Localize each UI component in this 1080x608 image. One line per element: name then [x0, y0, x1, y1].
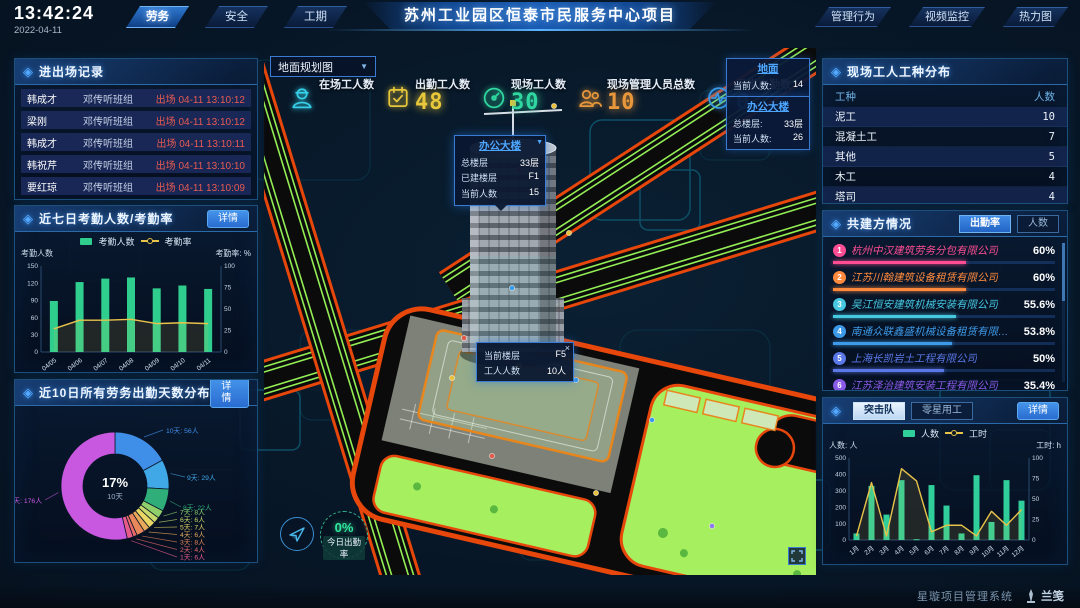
- partner-item: 2江苏川翰建筑设备租赁有限公司60%: [833, 270, 1055, 291]
- site-stat-value: 10: [607, 92, 695, 113]
- tooltip-row: 已建楼层F1: [461, 171, 539, 184]
- svg-text:0: 0: [34, 349, 38, 356]
- partner-name: 杭州中汉建筑劳务分包有限公司: [851, 243, 998, 258]
- tooltip-row-value: 14: [793, 79, 803, 92]
- worker-count: 4: [1049, 191, 1055, 203]
- partner-bar-fill: [833, 315, 956, 318]
- exit-event: 出场 04-11 13:10:12: [156, 113, 245, 128]
- tooltip-row-label: 当前楼层: [484, 349, 520, 362]
- svg-text:200: 200: [835, 504, 846, 511]
- tooltip-row: 工人人数10人: [484, 364, 566, 377]
- partner-bar-fill: [833, 288, 966, 291]
- svg-text:60: 60: [31, 315, 39, 322]
- today-attendance-gauge: 0% 今日出勤率: [320, 511, 368, 559]
- scrollbar[interactable]: [1062, 243, 1065, 382]
- svg-text:12月: 12月: [1010, 544, 1026, 559]
- tooltip-row-value: F1: [528, 171, 539, 184]
- svg-text:5月: 5月: [908, 544, 921, 557]
- map-area: 地面规划图 ▼ 在场工人数出勤工人数48现场工人数30现场管理人员总数10异常出…: [264, 48, 816, 575]
- site-stat-info: 现场工人数30: [511, 76, 566, 113]
- svg-text:30: 30: [31, 332, 39, 339]
- chart-legend: 人数工时: [823, 426, 1067, 440]
- rank-badge: 2: [833, 271, 846, 284]
- partner-item-top: 1杭州中汉建筑劳务分包有限公司60%: [833, 243, 1055, 258]
- svg-text:300: 300: [835, 488, 846, 495]
- diamond-icon: ◈: [23, 65, 33, 78]
- diamond-icon: ◈: [831, 404, 841, 417]
- topbar-tab[interactable]: 管理行为: [815, 7, 891, 27]
- diamond-icon: ◈: [831, 217, 841, 230]
- diamond-icon: ◈: [831, 65, 841, 78]
- legend-label: 考勤人数: [98, 235, 134, 248]
- svg-text:2月: 2月: [863, 544, 876, 557]
- tooltip-row: 当前人数:14: [733, 79, 803, 92]
- exit-event: 出场 04-11 13:10:10: [156, 157, 245, 172]
- partner-name: 江苏川翰建筑设备租赁有限公司: [851, 270, 998, 285]
- site-stat-value: 30: [511, 92, 566, 113]
- squad-chart-svg: 010020030040050002550751001月2月3月4月5月6月7月…: [823, 450, 1055, 564]
- site-stat-info: 现场管理人员总数10: [607, 76, 695, 113]
- partner-name: 江苏泽治建筑安装工程有限公司: [851, 378, 998, 391]
- svg-text:04/09: 04/09: [144, 357, 161, 373]
- attendance-chart-panel: ◈ 近七日考勤人数/考勤率 详情 考勤人数考勤率考勤人数考勤率: %030609…: [14, 205, 258, 373]
- map-info-box-title: 办公大楼: [733, 99, 803, 114]
- fullscreen-icon: [791, 550, 803, 562]
- partner-name: 上海长凯岩土工程有限公司: [851, 351, 977, 366]
- worker-types-panel: ◈ 现场工人工种分布 工种人数 泥工10混凝土工7其他5木工4塔司4: [822, 58, 1068, 204]
- distribution-detail-button[interactable]: 详情: [210, 379, 249, 408]
- close-icon[interactable]: ×: [565, 343, 570, 353]
- svg-text:9月: 9月: [968, 544, 981, 557]
- diamond-icon: ◈: [23, 386, 33, 399]
- partner-value: 55.6%: [1024, 299, 1055, 311]
- squad-tab[interactable]: 突击队: [853, 402, 905, 420]
- worker-type: 混凝土工: [835, 129, 877, 144]
- today-attendance-value: 0%: [321, 520, 367, 535]
- partner-value: 35.4%: [1024, 380, 1055, 392]
- site-stats-row: 在场工人数出勤工人数48现场工人数30现场管理人员总数10异常出勤数0: [288, 76, 791, 113]
- svg-text:04/10: 04/10: [170, 357, 187, 373]
- axis-captions: 人数: 人工时: h: [823, 440, 1067, 450]
- svg-text:04/11: 04/11: [196, 357, 213, 372]
- svg-text:3天: 8人: 3天: 8人: [180, 539, 205, 547]
- rank-badge: 3: [833, 298, 846, 311]
- legend-line-dot: [951, 430, 957, 436]
- site-stat: 现场管理人员总数10: [576, 76, 695, 113]
- entry-exit-row: 韩成才邓传听班组出场 04-11 13:10:12: [21, 89, 251, 107]
- worker-group: 邓传听班组: [83, 91, 156, 106]
- tooltip-row: 总楼层33层: [461, 156, 539, 169]
- floor-tooltip: × 当前楼层F5工人人数10人: [476, 342, 574, 382]
- clock: 13:42:24 2022-04-11: [14, 3, 94, 36]
- table-row: 木工4: [823, 167, 1067, 187]
- table-row: 泥工10: [823, 107, 1067, 127]
- site-stat-info: 在场工人数: [319, 76, 374, 113]
- svg-text:04/05: 04/05: [41, 357, 58, 373]
- tooltip-row: 总楼层:33层: [733, 117, 803, 130]
- topbar-tab[interactable]: 安全: [205, 6, 268, 28]
- tooltip-row: 当前楼层F5: [484, 349, 566, 362]
- tooltip-row-label: 当前人数: [461, 187, 497, 200]
- worker-name: 梁刚: [27, 113, 83, 128]
- partner-value: 53.8%: [1024, 326, 1055, 338]
- column-header: 人数: [1034, 89, 1055, 104]
- tooltip-row: 当前人数:26: [733, 132, 803, 145]
- svg-text:7月: 7月: [938, 544, 951, 557]
- partner-name: 南通众联鑫盛机械设备租赁有限公司: [851, 324, 1011, 339]
- tooltip-row-label: 总楼层:: [733, 117, 763, 130]
- exit-event: 出场 04-11 13:10:12: [156, 91, 245, 106]
- navigation-icon: [287, 524, 307, 544]
- partner-item: 3吴江恒安建筑机械安装有限公司55.6%: [833, 297, 1055, 318]
- topbar-tab[interactable]: 劳务: [126, 6, 189, 28]
- svg-text:2天: 4人: 2天: 4人: [180, 546, 205, 554]
- entry-exit-title: 进出场记录: [39, 63, 104, 80]
- table-row: 混凝土工7: [823, 127, 1067, 147]
- svg-text:04/08: 04/08: [118, 357, 135, 373]
- svg-text:0: 0: [224, 349, 228, 356]
- site-stat-value: [319, 92, 374, 113]
- svg-text:100: 100: [835, 521, 846, 528]
- att-chart-svg: 0306090120150025507510004/0504/0604/0704…: [15, 258, 247, 373]
- svg-text:10月: 10月: [980, 544, 996, 559]
- svg-text:0天: 176人: 0天: 176人: [15, 497, 42, 505]
- site-stat: 在场工人数: [288, 76, 374, 113]
- partners-panel: ◈ 共建方情况 出勤率人数 1杭州中汉建筑劳务分包有限公司60%2江苏川翰建筑设…: [822, 210, 1068, 391]
- topbar-left-tabs: 劳务安全工期: [126, 6, 347, 28]
- svg-text:11月: 11月: [995, 544, 1010, 558]
- compass-button[interactable]: [280, 517, 314, 551]
- building-tooltip-title[interactable]: 办公大楼 ▼: [461, 138, 539, 153]
- svg-text:1天: 6人: 1天: 6人: [180, 554, 205, 562]
- page-title: 苏州工业园区恒泰市民服务中心项目: [364, 2, 716, 29]
- partner-bar-track: [833, 288, 1055, 291]
- worker-name: 韩祝芹: [27, 157, 83, 172]
- distribution-chart-header: ◈ 近10日所有劳务出勤天数分布 详情: [15, 380, 257, 406]
- distribution-chart-panel: ◈ 近10日所有劳务出勤天数分布 详情 17%10天10天: 56人9天: 29…: [14, 379, 258, 563]
- legend-bar-swatch: [903, 430, 915, 437]
- svg-text:8月: 8月: [953, 544, 966, 557]
- attendance-chart-title: 近七日考勤人数/考勤率: [39, 210, 173, 227]
- worker-type: 塔司: [835, 189, 856, 204]
- squad-chart-header: ◈ 突击队零星用工 详情: [823, 398, 1067, 424]
- svg-text:25: 25: [224, 328, 232, 335]
- topbar-tab[interactable]: 工期: [284, 6, 347, 28]
- worker-group: 邓传听班组: [83, 157, 156, 172]
- worker-type: 其他: [835, 149, 856, 164]
- worker-types-header: ◈ 现场工人工种分布: [823, 59, 1067, 85]
- svg-text:4天: 6人: 4天: 6人: [180, 531, 205, 539]
- worker-name: 韩成才: [27, 91, 83, 106]
- partner-name: 吴江恒安建筑机械安装有限公司: [851, 297, 998, 312]
- map-info-box[interactable]: 办公大楼总楼层:33层当前人数:26: [726, 96, 810, 150]
- svg-text:120: 120: [27, 280, 38, 287]
- svg-text:5天: 7人: 5天: 7人: [180, 524, 205, 532]
- site-stat-value: 48: [415, 92, 470, 113]
- squad-detail-button[interactable]: 详情: [1017, 402, 1059, 420]
- left-axis-caption: 考勤人数: [21, 248, 53, 258]
- worker-count: 7: [1049, 131, 1055, 143]
- worker-icon: [288, 76, 316, 112]
- fullscreen-button[interactable]: [788, 547, 806, 565]
- exit-event: 出场 04-11 13:10:09: [156, 179, 245, 194]
- attendance-chart-header: ◈ 近七日考勤人数/考勤率 详情: [15, 206, 257, 232]
- column-header: 工种: [835, 89, 856, 104]
- svg-text:10天: 56人: 10天: 56人: [166, 427, 199, 435]
- title-underline: [325, 29, 755, 31]
- partner-item-top: 6江苏泽治建筑安装工程有限公司35.4%: [833, 378, 1055, 391]
- partner-bar-track: [833, 369, 1055, 372]
- distribution-chart-title: 近10日所有劳务出勤天数分布: [39, 384, 210, 401]
- entry-exit-row: 韩祝芹邓传听班组出场 04-11 13:10:10: [21, 155, 251, 173]
- worker-types-title: 现场工人工种分布: [847, 63, 951, 80]
- site-parcel: [345, 301, 816, 575]
- tooltip-row-label: 总楼层: [461, 156, 488, 169]
- svg-text:50: 50: [1032, 496, 1040, 503]
- svg-text:25: 25: [1032, 517, 1040, 524]
- svg-text:75: 75: [224, 285, 232, 292]
- chevron-down-icon: ▼: [360, 62, 368, 71]
- svg-text:150: 150: [27, 263, 38, 270]
- legend-label: 工时: [969, 427, 987, 440]
- partner-item: 4南通众联鑫盛机械设备租赁有限公司53.8%: [833, 324, 1055, 345]
- today-attendance-label: 今日出勤率: [323, 536, 365, 560]
- rank-badge: 4: [833, 325, 846, 338]
- rank-badge: 1: [833, 244, 846, 257]
- partner-value: 50%: [1033, 353, 1055, 365]
- building-tooltip[interactable]: 办公大楼 ▼ 总楼层33层已建楼层F1当前人数15: [454, 135, 546, 206]
- site-stat-label: 在场工人数: [319, 76, 374, 92]
- gauge-icon: [480, 76, 508, 112]
- worker-group: 邓传听班组: [83, 179, 156, 194]
- tooltip-row-value: 33层: [520, 156, 539, 169]
- svg-text:17%: 17%: [102, 475, 128, 490]
- entry-exit-more-link[interactable]: 更多>>: [25, 198, 247, 200]
- worker-count: 5: [1049, 151, 1055, 163]
- tooltip-row-value: 26: [793, 132, 803, 145]
- tooltip-row-value: 15: [529, 187, 539, 200]
- rank-badge: 6: [833, 379, 846, 391]
- topbar-right-tabs: 管理行为视频监控热力图: [815, 7, 1068, 27]
- entry-exit-row: 韩成才邓传听班组出场 04-11 13:10:11: [21, 133, 251, 151]
- rank-badge: 5: [833, 352, 846, 365]
- partner-item-top: 4南通众联鑫盛机械设备租赁有限公司53.8%: [833, 324, 1055, 339]
- partners-title: 共建方情况: [847, 215, 912, 232]
- svg-text:400: 400: [835, 472, 846, 479]
- top-bar: 13:42:24 2022-04-11 劳务安全工期 苏州工业园区恒泰市民服务中…: [0, 0, 1080, 34]
- map-info-box[interactable]: 地面当前人数:14: [726, 58, 810, 97]
- footer-brand: 星璇项目管理系统: [917, 588, 1013, 604]
- footer: 星璇项目管理系统 兰笺: [0, 584, 1080, 608]
- chart-legend: 考勤人数考勤率: [15, 234, 257, 248]
- svg-text:04/06: 04/06: [67, 357, 84, 373]
- legend-bar-swatch: [80, 238, 92, 245]
- partner-bar-fill: [833, 261, 966, 264]
- axis-captions: 考勤人数考勤率: %: [15, 248, 257, 258]
- partner-bar-fill: [833, 342, 952, 345]
- tooltip-row-label: 当前人数:: [733, 79, 772, 92]
- tooltip-row-label: 已建楼层: [461, 171, 497, 184]
- svg-text:0: 0: [1032, 537, 1036, 544]
- topbar-tab[interactable]: 热力图: [1003, 7, 1068, 27]
- svg-text:90: 90: [31, 298, 39, 305]
- calendar-check-icon: [384, 76, 412, 112]
- site-stat-info: 出勤工人数48: [415, 76, 470, 113]
- svg-text:10天: 10天: [107, 492, 123, 501]
- svg-text:1月: 1月: [848, 544, 861, 557]
- partner-item-top: 3吴江恒安建筑机械安装有限公司55.6%: [833, 297, 1055, 312]
- worker-types-columns: 工种人数: [823, 85, 1067, 107]
- clock-date: 2022-04-11: [14, 25, 94, 36]
- exit-event: 出场 04-11 13:10:11: [156, 135, 245, 150]
- svg-text:7天: 8人: 7天: 8人: [180, 509, 205, 517]
- distribution-donut-svg: 17%10天10天: 56人9天: 29人8天: 22人7天: 8人6天: 6人…: [15, 406, 247, 562]
- worker-group: 邓传听班组: [83, 113, 156, 128]
- right-axis-caption: 考勤率: %: [215, 248, 251, 258]
- site-stat: 现场工人数30: [480, 76, 566, 113]
- brand-logo-icon: [1025, 589, 1037, 603]
- worker-count: 10: [1042, 111, 1055, 123]
- tooltip-row-label: 当前人数:: [733, 132, 772, 145]
- dashboard: 13:42:24 2022-04-11 劳务安全工期 苏州工业园区恒泰市民服务中…: [0, 0, 1080, 608]
- tooltip-row: 当前人数15: [461, 187, 539, 200]
- svg-text:500: 500: [835, 455, 846, 462]
- entry-exit-panel: ◈ 进出场记录 韩成才邓传听班组出场 04-11 13:10:12梁刚邓传听班组…: [14, 58, 258, 200]
- worker-type: 木工: [835, 169, 856, 184]
- partners-header: ◈ 共建方情况 出勤率人数: [823, 211, 1067, 237]
- svg-text:0: 0: [842, 537, 846, 544]
- squad-chart-panel: ◈ 突击队零星用工 详情 人数工时人数: 人工时: h0100200300400…: [822, 397, 1068, 565]
- svg-text:4月: 4月: [893, 544, 906, 557]
- left-axis-caption: 人数: 人: [829, 440, 857, 450]
- partner-value: 60%: [1033, 272, 1055, 284]
- svg-text:100: 100: [224, 263, 235, 270]
- entry-exit-row: 梁刚邓传听班组出场 04-11 13:10:12: [21, 111, 251, 129]
- partner-bar-track: [833, 342, 1055, 345]
- worker-name: 韩成才: [27, 135, 83, 150]
- svg-text:04/07: 04/07: [92, 357, 109, 373]
- worker-count: 4: [1049, 171, 1055, 183]
- footer-logo: 兰笺: [1025, 588, 1064, 604]
- partner-bar-fill: [833, 369, 944, 372]
- legend-line-swatch: [141, 240, 159, 242]
- partner-item-top: 2江苏川翰建筑设备租赁有限公司60%: [833, 270, 1055, 285]
- right-axis-caption: 工时: h: [1036, 440, 1061, 450]
- partner-item: 6江苏泽治建筑安装工程有限公司35.4%: [833, 378, 1055, 391]
- tooltip-row-value: 10人: [547, 364, 566, 377]
- svg-text:75: 75: [1032, 476, 1040, 483]
- site-stat: 出勤工人数48: [384, 76, 470, 113]
- squad-tab[interactable]: 零星用工: [911, 402, 973, 420]
- worker-name: 要红琼: [27, 179, 83, 194]
- legend-line-swatch: [945, 432, 963, 434]
- legend-line-dot: [147, 238, 153, 244]
- partner-bar-track: [833, 261, 1055, 264]
- legend-label: 考勤率: [165, 235, 192, 248]
- partners-tab[interactable]: 出勤率: [959, 215, 1011, 233]
- svg-text:50: 50: [224, 306, 232, 313]
- svg-text:100: 100: [1032, 455, 1043, 462]
- diamond-icon: ◈: [23, 212, 33, 225]
- attendance-detail-button[interactable]: 详情: [207, 210, 249, 228]
- worker-group: 邓传听班组: [83, 135, 156, 150]
- entry-exit-row: 要红琼邓传听班组出场 04-11 13:10:09: [21, 177, 251, 195]
- svg-text:6天: 6人: 6天: 6人: [180, 516, 205, 524]
- map-layer-select[interactable]: 地面规划图 ▼: [270, 56, 376, 77]
- topbar-tab[interactable]: 视频监控: [909, 7, 985, 27]
- map-layer-value: 地面规划图: [278, 59, 333, 75]
- svg-text:9天: 29人: 9天: 29人: [187, 474, 216, 482]
- clock-time: 13:42:24: [14, 3, 94, 24]
- tooltip-row-label: 工人人数: [484, 364, 520, 377]
- partner-item: 1杭州中汉建筑劳务分包有限公司60%: [833, 243, 1055, 264]
- partners-tab[interactable]: 人数: [1017, 215, 1059, 233]
- people-icon: [576, 76, 604, 112]
- entry-exit-header: ◈ 进出场记录: [15, 59, 257, 85]
- partner-item-top: 5上海长凯岩土工程有限公司50%: [833, 351, 1055, 366]
- map-info-box-title: 地面: [733, 61, 803, 76]
- table-row: 其他5: [823, 147, 1067, 167]
- svg-text:6月: 6月: [923, 544, 936, 557]
- chevron-down-icon: ▼: [536, 139, 543, 146]
- legend-label: 人数: [921, 427, 939, 440]
- partner-item: 5上海长凯岩土工程有限公司50%: [833, 351, 1055, 372]
- tooltip-row-value: 33层: [784, 117, 803, 130]
- svg-text:3月: 3月: [878, 544, 891, 557]
- partner-value: 60%: [1033, 245, 1055, 257]
- worker-type: 泥工: [835, 109, 856, 124]
- table-row: 塔司4: [823, 187, 1067, 204]
- partner-bar-track: [833, 315, 1055, 318]
